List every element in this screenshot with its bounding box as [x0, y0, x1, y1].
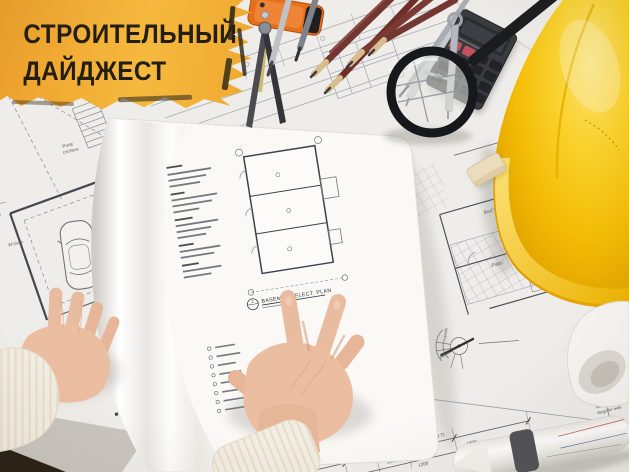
banner-line-1: СТРОИТЕЛЬНЫЙ	[23, 16, 235, 53]
photo-construction-digest-cover: Porte cochere W'shop Spa Bed 5 Patio Dec…	[0, 0, 629, 472]
banner-line-2: ДАЙДЖЕСТ	[23, 53, 235, 90]
